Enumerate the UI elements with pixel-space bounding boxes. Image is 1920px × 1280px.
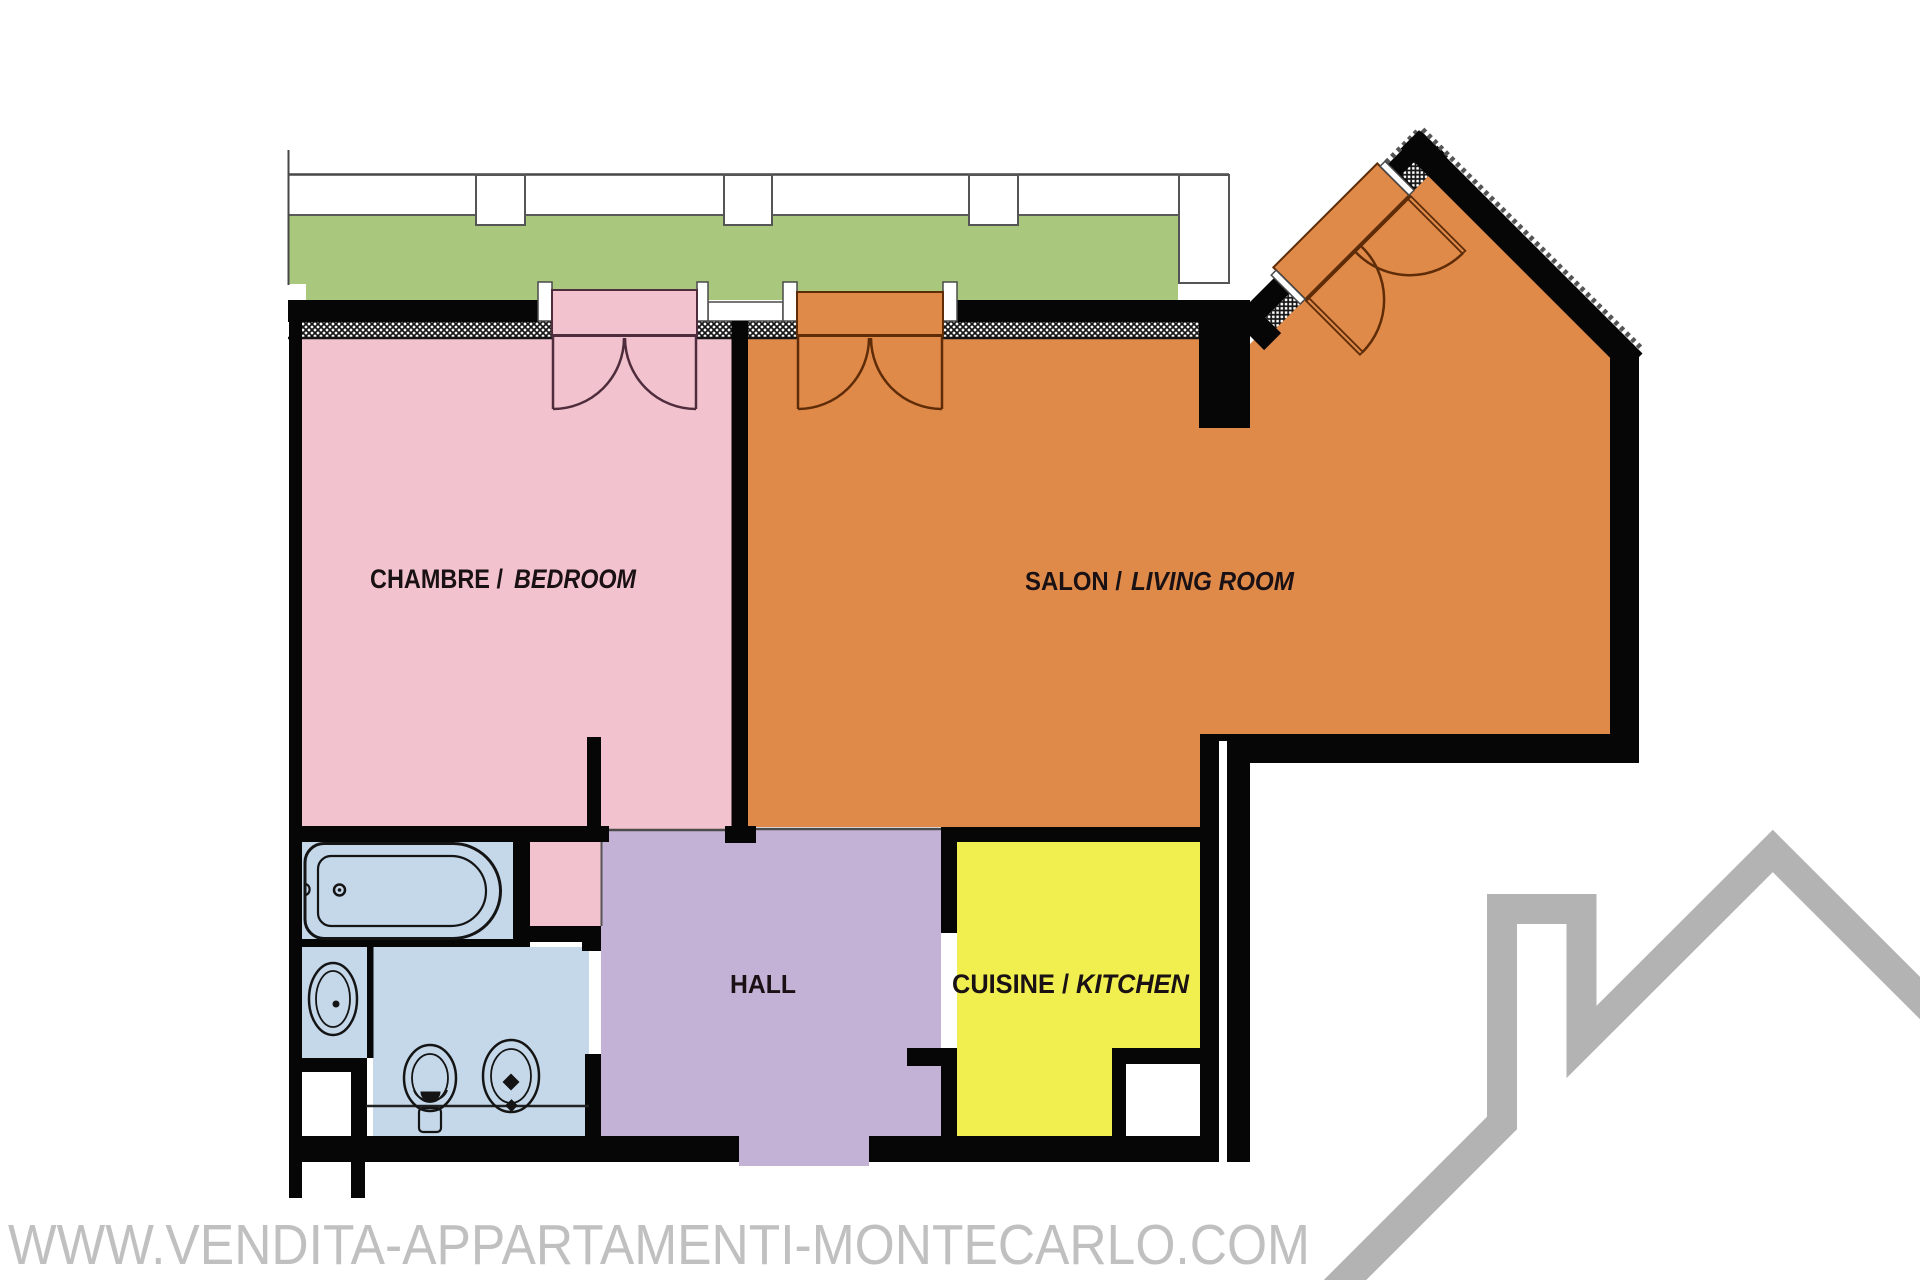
svg-text:WWW.VENDITA-APPARTAMENTI-MONTE: WWW.VENDITA-APPARTAMENTI-MONTECARLO.COM bbox=[8, 1213, 1310, 1277]
svg-text:CUISINE /: CUISINE / bbox=[952, 969, 1069, 999]
svg-text:LIVING ROOM: LIVING ROOM bbox=[1131, 566, 1295, 596]
svg-text:BEDROOM: BEDROOM bbox=[514, 564, 636, 594]
svg-text:HALL: HALL bbox=[730, 969, 796, 999]
svg-text:SALON /: SALON / bbox=[1025, 566, 1122, 596]
svg-text:KITCHEN: KITCHEN bbox=[1076, 969, 1189, 999]
svg-text:CHAMBRE /: CHAMBRE / bbox=[370, 564, 503, 594]
